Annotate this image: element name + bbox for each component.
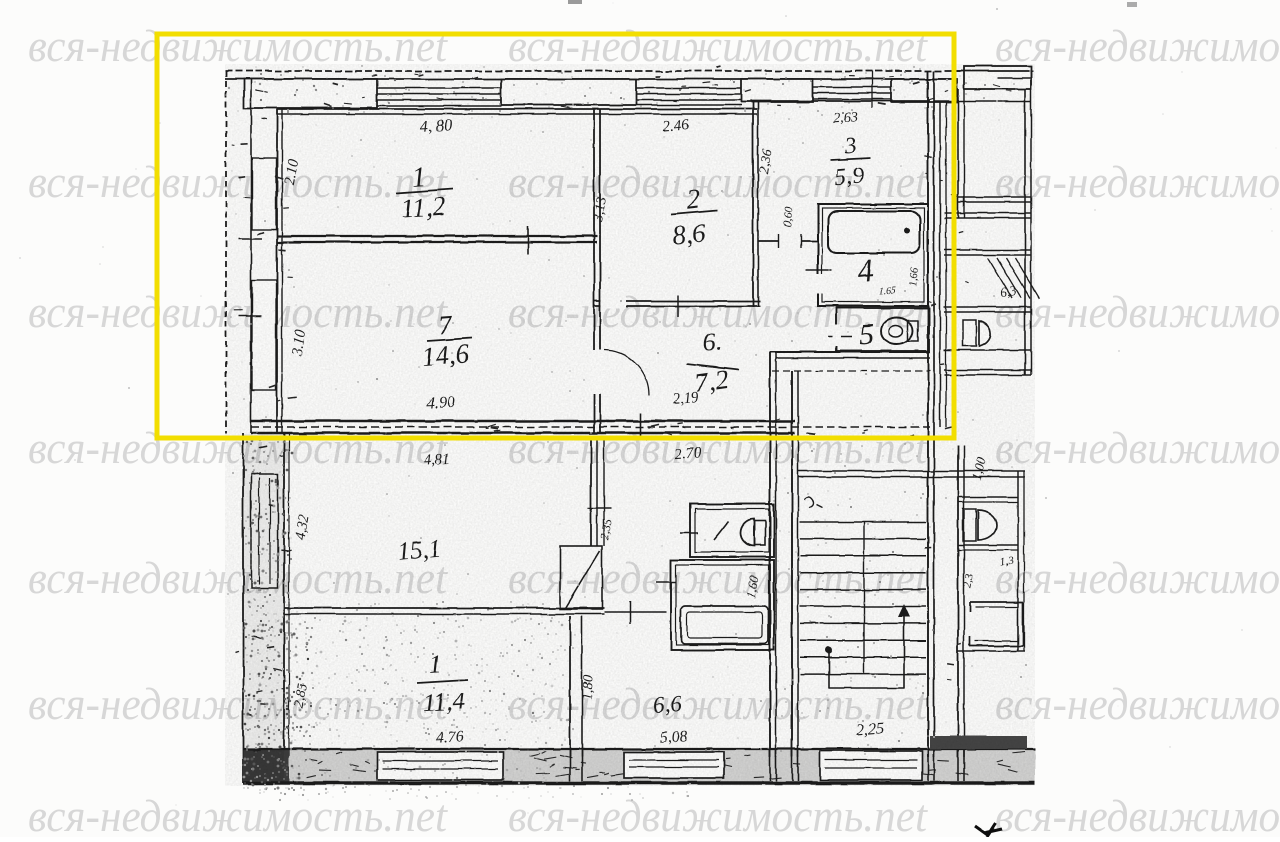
svg-text:вся-недвижимость.net: вся-недвижимость.net <box>995 552 1280 603</box>
svg-text:вся-недвижимость.net: вся-недвижимость.net <box>995 678 1280 729</box>
svg-text:вся-недвижимость.net: вся-недвижимость.net <box>995 156 1280 207</box>
svg-text:вся-недвижимость.net: вся-недвижимость.net <box>28 20 448 71</box>
svg-text:вся-недвижимость.net: вся-недвижимость.net <box>995 286 1280 337</box>
svg-text:вся-недвижимость.net: вся-недвижимость.net <box>995 422 1280 473</box>
svg-text:вся-недвижимость.net: вся-недвижимость.net <box>995 790 1280 837</box>
svg-text:вся-недвижимость.net: вся-недвижимость.net <box>995 20 1280 71</box>
svg-text:вся-недвижимость.net: вся-недвижимость.net <box>28 790 448 837</box>
svg-text:вся-недвижимость.net: вся-недвижимость.net <box>508 790 928 837</box>
svg-text:вся-недвижимость.net: вся-недвижимость.net <box>508 20 928 71</box>
